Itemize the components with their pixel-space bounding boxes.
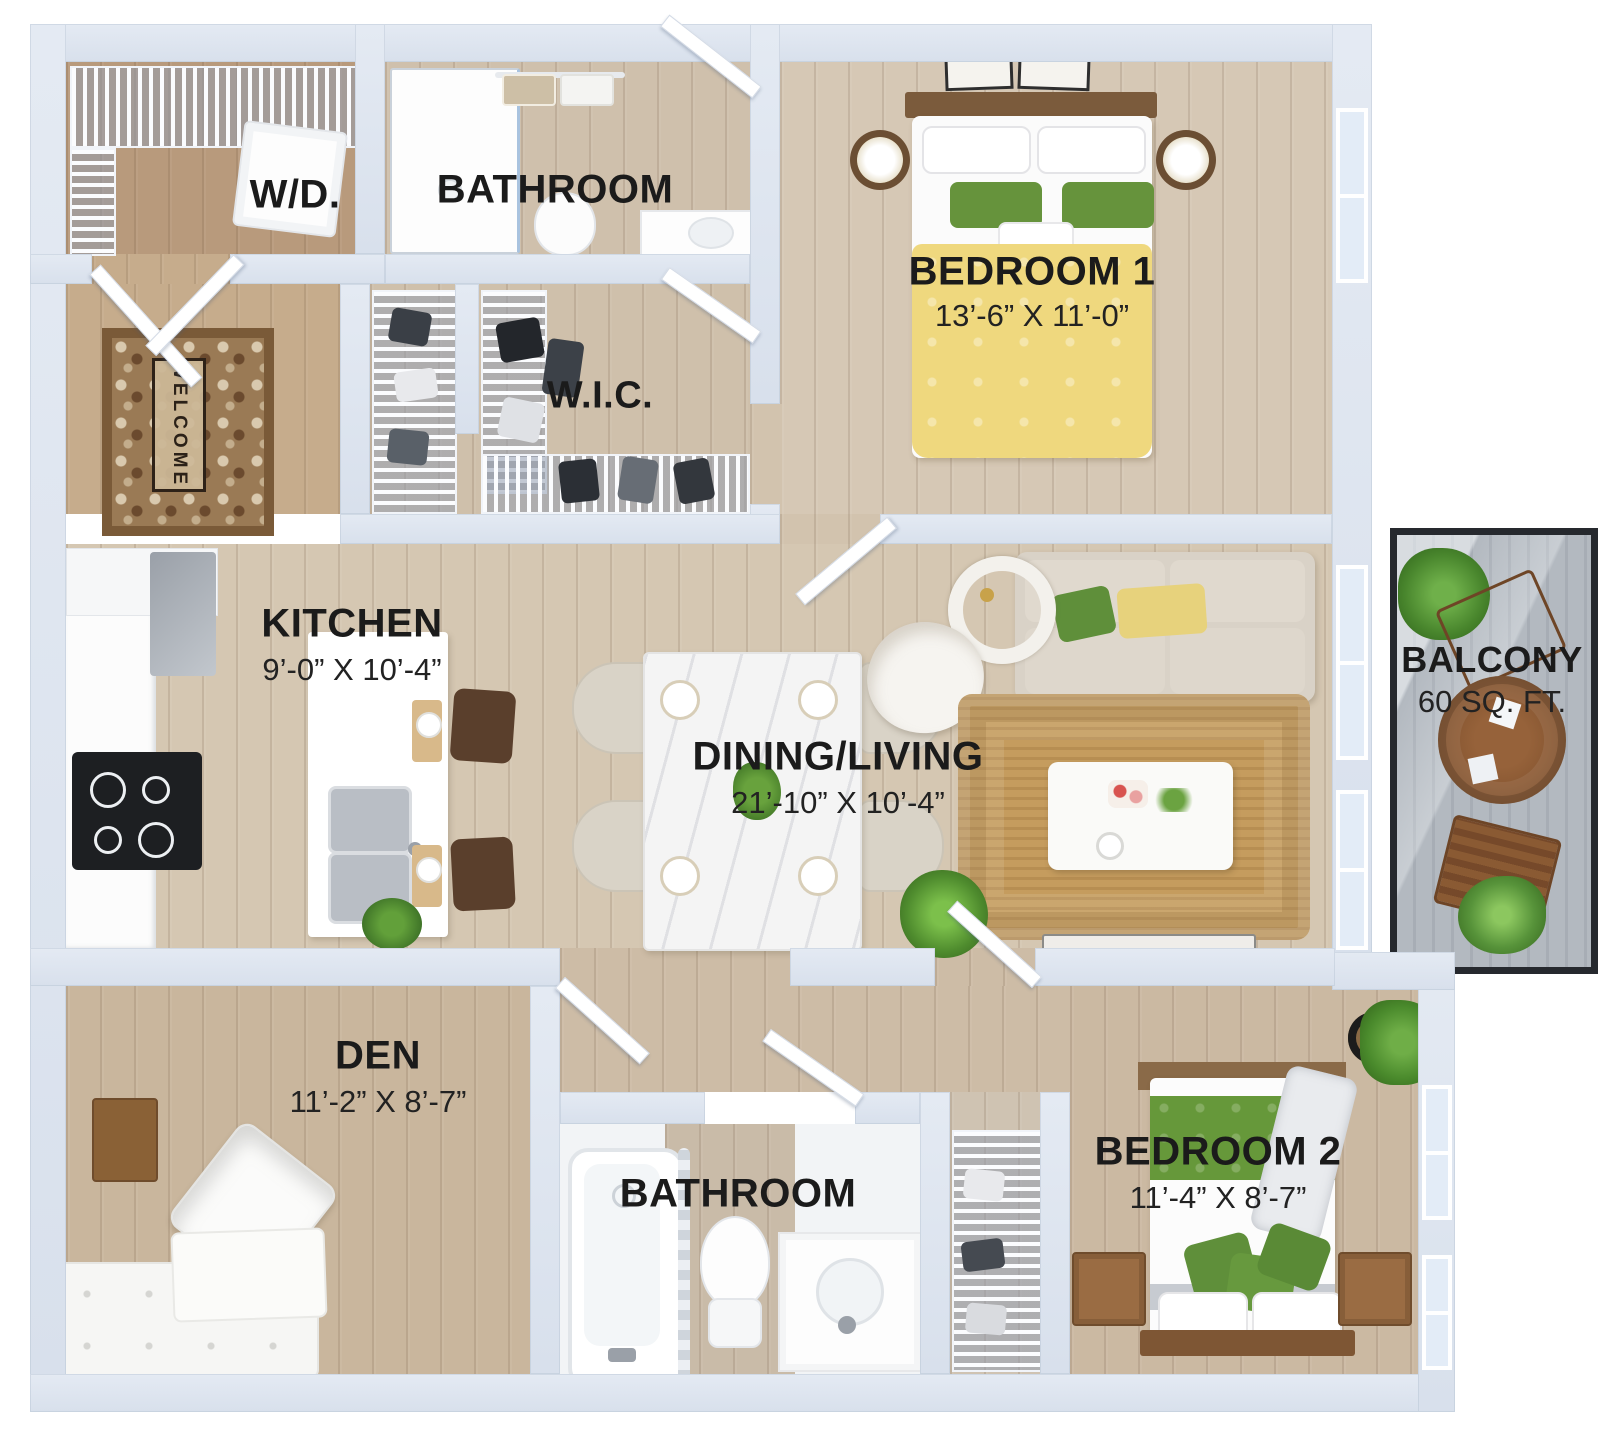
window-pane (1340, 198, 1364, 280)
sofa-yellow-pillow (1116, 583, 1207, 639)
balcony-door-window (1336, 565, 1368, 760)
wall-kitchen-den (30, 948, 560, 986)
wall-wic-bottom (340, 514, 780, 544)
place-setting (798, 680, 838, 720)
window-pane (1426, 1315, 1448, 1367)
bedroom1-pillow-right (1037, 126, 1146, 174)
den-dims: 11’-2” X 8’-7” (290, 1084, 467, 1120)
cooktop-burner (142, 776, 170, 804)
bedroom2-dims: 11’-4” X 8’-7” (1130, 1180, 1307, 1216)
balcony-dims: 60 SQ. FT. (1418, 684, 1566, 720)
wic-label: W.I.C. (547, 375, 653, 418)
living-plant (900, 870, 988, 958)
vanity-top-basin (688, 217, 734, 249)
toilet-bottom-base (708, 1298, 762, 1348)
coffee-table (1048, 762, 1233, 870)
cooktop-burner (94, 826, 122, 854)
wall-wd-bottom-right (230, 254, 385, 284)
clothes-item (617, 455, 659, 504)
bedroom1-headboard (905, 92, 1157, 118)
cooktop-burner (90, 772, 126, 808)
bedroom2-label: BEDROOM 2 (1095, 1130, 1342, 1175)
bathroom-top-label: BATHROOM (437, 168, 674, 213)
window-pane (1340, 872, 1364, 946)
bedroom1-pillow-left (922, 126, 1031, 174)
bedroom2-chest-right (1338, 1252, 1412, 1326)
bathtub-faucet (608, 1348, 636, 1362)
place-setting (798, 856, 838, 896)
island-plate-lower (416, 857, 442, 883)
bathroom-bottom-label: BATHROOM (620, 1172, 857, 1217)
bedroom1-dims: 13’-6” X 11’-0” (935, 298, 1129, 334)
toilet-bottom (700, 1216, 770, 1308)
balcony-label: BALCONY (1401, 639, 1583, 681)
island-plant (362, 898, 422, 950)
den-label: DEN (335, 1034, 421, 1079)
wall-living-bedroom2-left (790, 948, 935, 986)
bedroom2-chest-left (1072, 1252, 1146, 1326)
clothes-item (387, 307, 432, 347)
wall-bath-bottom (385, 254, 750, 284)
bar-stool-upper (450, 688, 517, 764)
clothes-item (386, 428, 429, 466)
wall-closet-bedroom2-divider (1040, 1092, 1070, 1374)
clothes-item (672, 457, 715, 505)
den-cabinet (92, 1098, 158, 1182)
clothes-item (496, 396, 545, 444)
window-pane (1426, 1259, 1448, 1311)
clothes-item (495, 316, 545, 363)
kitchen-label: KITCHEN (261, 602, 442, 647)
bar-stool-lower (450, 836, 516, 911)
floor-plan: WELCOME (0, 0, 1600, 1441)
wd-label: W/D. (250, 173, 341, 218)
clothes-item (558, 458, 600, 504)
island-plate-upper (416, 712, 442, 738)
coffee-table-cup (1096, 832, 1124, 860)
cooktop-burner (138, 822, 174, 858)
wall-entry-wic-divider (340, 284, 370, 514)
kitchen-dims: 9’-0” X 10’-4” (262, 652, 441, 688)
wall-living-bedroom2-right (1035, 948, 1335, 986)
bedroom1-green-pillow-right (1062, 182, 1154, 228)
wall-wic-inner-divider (455, 284, 479, 434)
wall-right-step (1332, 952, 1455, 990)
living-window (1336, 790, 1368, 950)
sofa-seat-cushion (1170, 628, 1305, 694)
wd-wire-shelf-left (70, 148, 116, 256)
wall-left (30, 24, 66, 1412)
lamp-right (1163, 137, 1209, 183)
wall-wd-bottom-left (30, 254, 92, 284)
linen-item (963, 1168, 1006, 1202)
window-pane (1426, 1089, 1448, 1151)
window-pane (1340, 794, 1364, 868)
wall-bottom (30, 1374, 1455, 1412)
floor-lamp-bulb (980, 588, 994, 602)
wall-bedroom1-bottom (880, 514, 1332, 544)
wall-den-bath-divider (530, 986, 560, 1374)
wall-bath-top-left (560, 1092, 705, 1124)
lamp-left (857, 137, 903, 183)
window-pane (1426, 1155, 1448, 1217)
balcony-plant-bottom (1458, 876, 1546, 954)
dining-living-dims: 21’-10” X 10’-4” (731, 785, 945, 821)
window-pane (1340, 112, 1364, 194)
linen-item (965, 1302, 1007, 1335)
coffee-table-greenery (1152, 788, 1196, 812)
towel-tan (502, 74, 556, 106)
towel-white (560, 74, 614, 106)
bedroom1-window (1336, 108, 1368, 283)
cooktop (72, 752, 202, 870)
bedroom2-window-upper (1422, 1085, 1452, 1220)
dining-living-label: DINING/LIVING (693, 735, 984, 780)
range-hood (150, 552, 216, 676)
island-sink-upper (328, 786, 412, 854)
clothes-item (393, 367, 439, 403)
window-pane (1340, 569, 1364, 661)
bedroom1-label: BEDROOM 1 (909, 250, 1156, 295)
den-door-gap-floor (560, 948, 790, 986)
shower-stall (390, 68, 520, 254)
place-setting (660, 680, 700, 720)
wall-bath-top-right (855, 1092, 920, 1124)
bedroom2-platform (1140, 1330, 1355, 1356)
balcony-napkin (1468, 754, 1499, 785)
den-sectional-chaise (170, 1227, 327, 1322)
bedroom2-window-lower (1422, 1255, 1452, 1370)
linen-item (960, 1238, 1005, 1273)
window-pane (1340, 665, 1364, 757)
place-setting (660, 856, 700, 896)
vanity-bottom-faucet (838, 1316, 856, 1334)
wall-bath-closet-divider (920, 1092, 950, 1374)
wall-wd-bath-divider (355, 24, 385, 254)
coffee-table-flowers (1108, 780, 1148, 808)
